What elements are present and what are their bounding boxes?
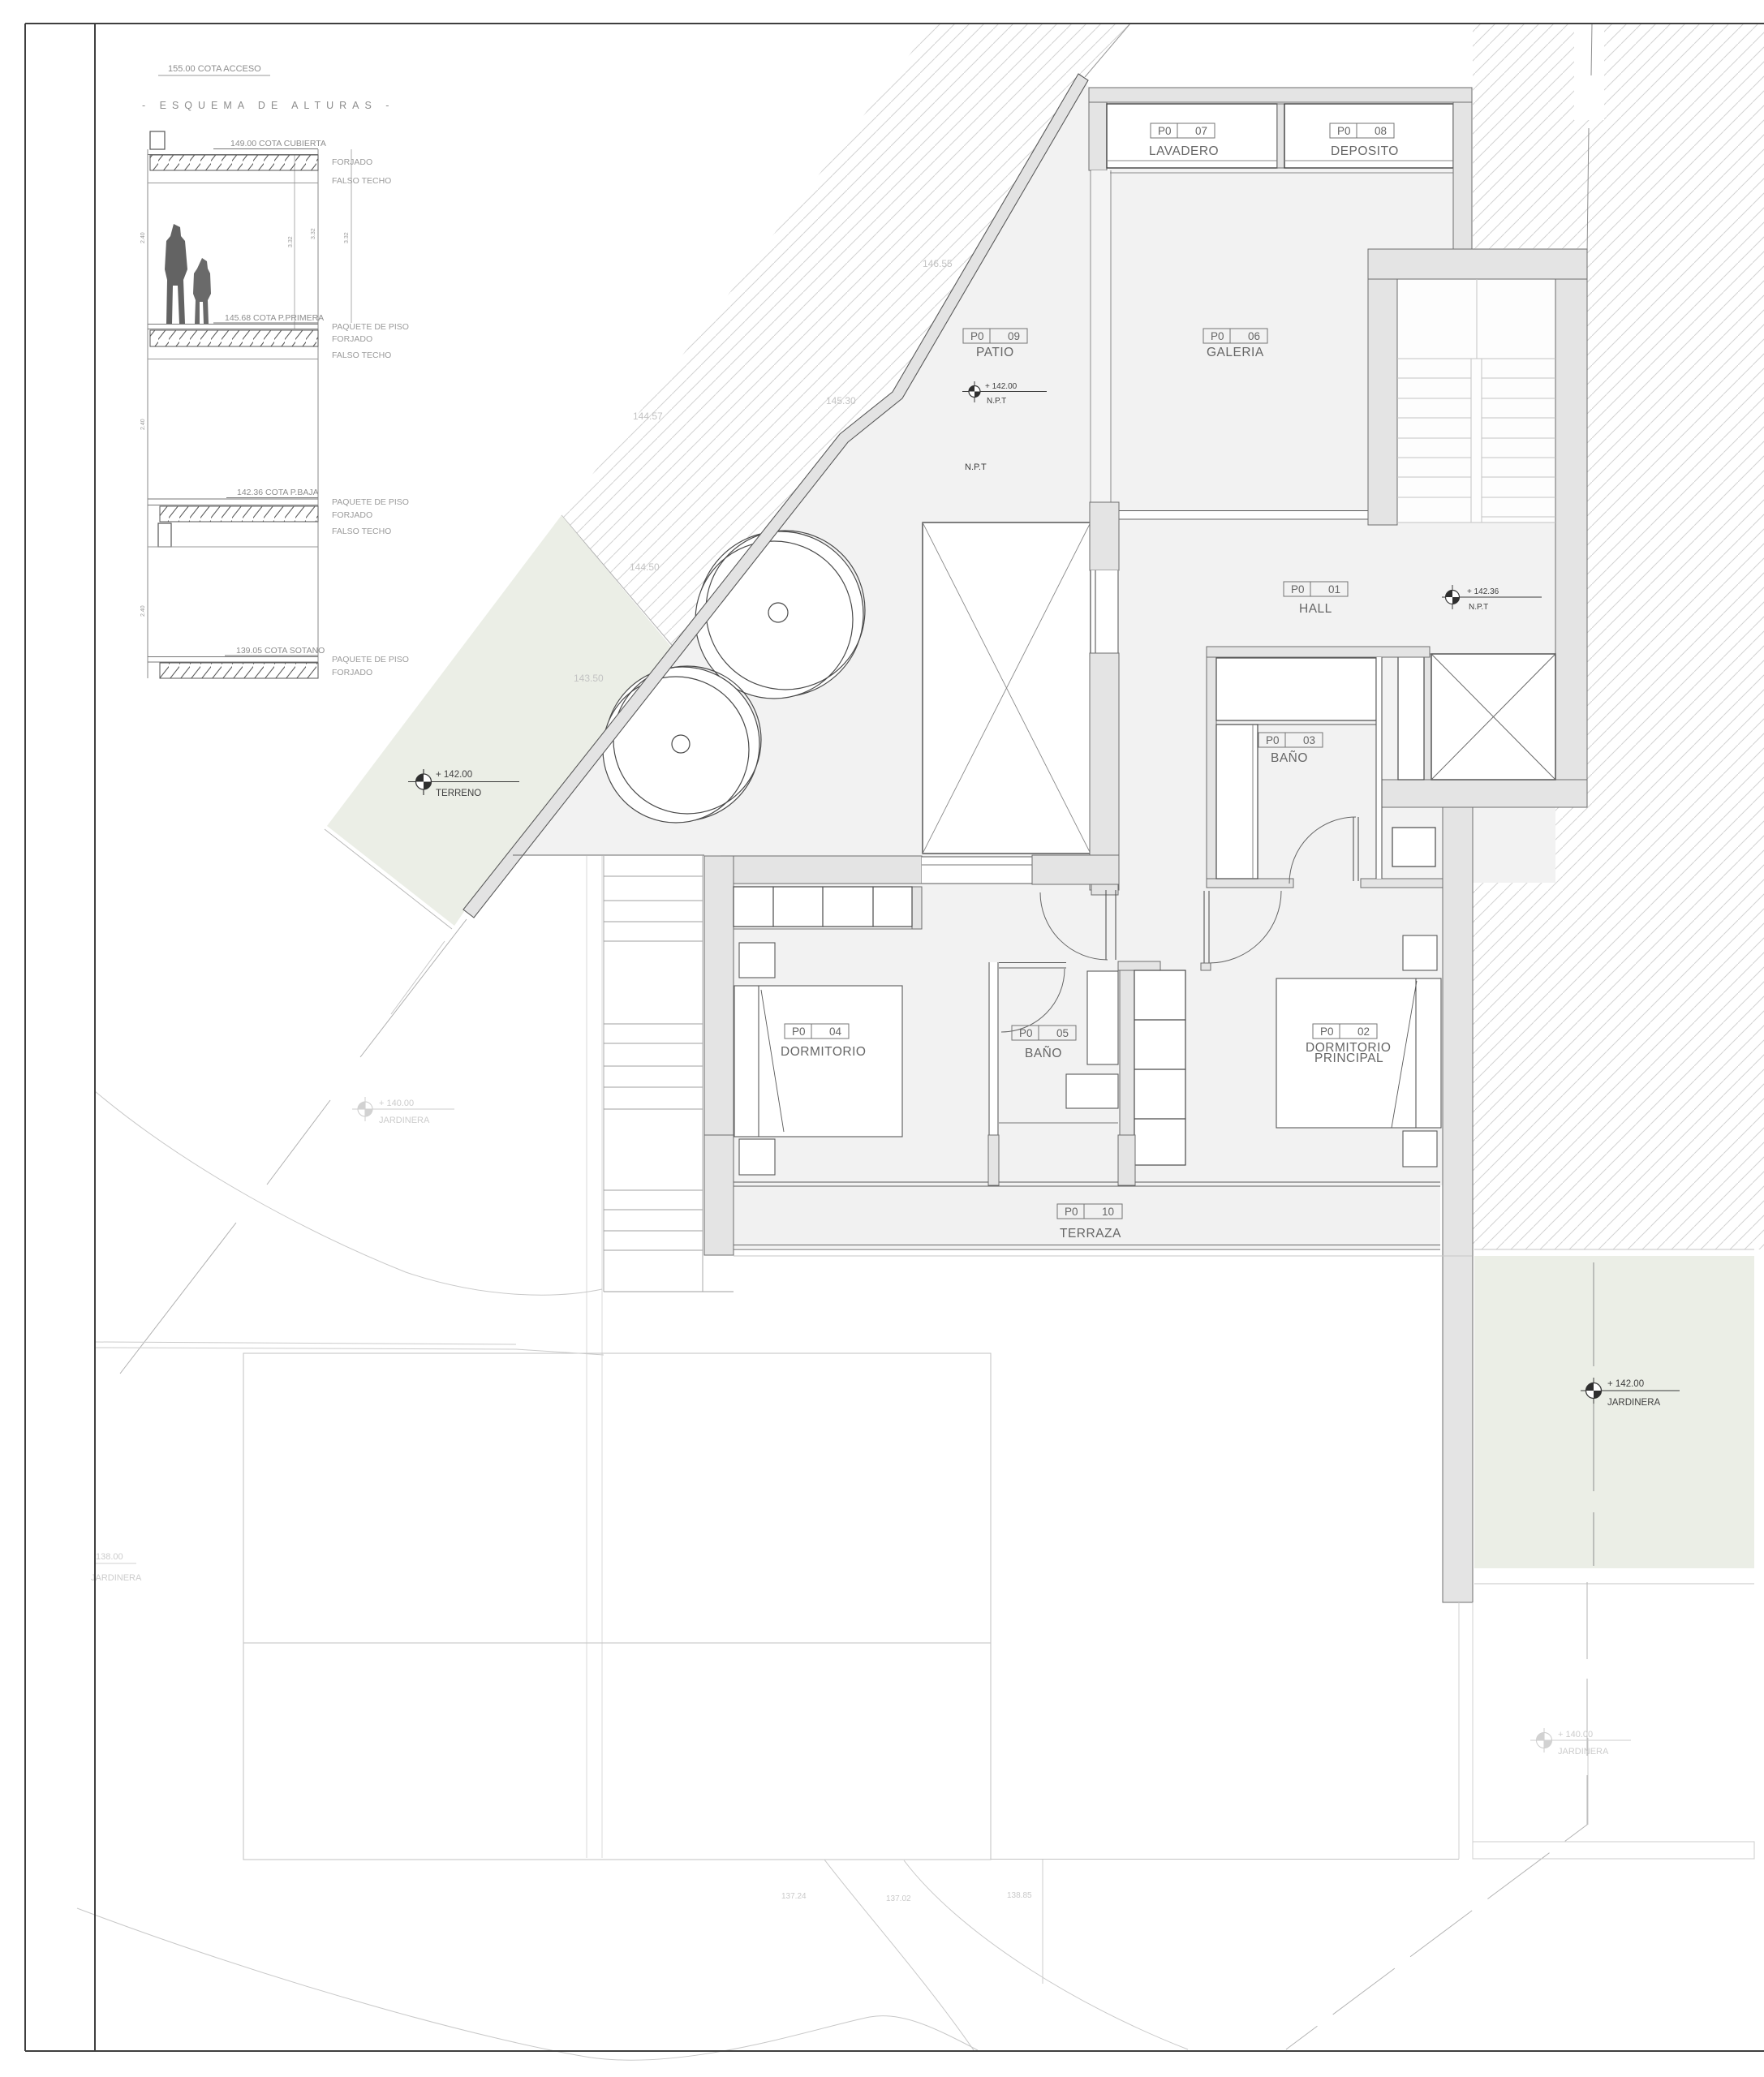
svg-text:03: 03	[1303, 734, 1315, 746]
svg-text:139.05 COTA SOTANO: 139.05 COTA SOTANO	[236, 646, 325, 656]
svg-text:P0: P0	[1291, 583, 1305, 596]
svg-text:155.00 COTA ACCESO: 155.00 COTA ACCESO	[168, 64, 261, 74]
svg-text:+ 142.00: + 142.00	[985, 382, 1018, 391]
svg-text:P0: P0	[1158, 125, 1172, 137]
svg-text:TERRENO: TERRENO	[436, 789, 481, 798]
svg-text:2.40: 2.40	[140, 605, 146, 617]
svg-text:N.P.T: N.P.T	[965, 462, 987, 472]
svg-text:138.00: 138.00	[96, 1552, 123, 1562]
svg-text:FORJADO: FORJADO	[332, 334, 372, 344]
svg-text:144.50: 144.50	[630, 561, 660, 573]
svg-text:JARDINERA: JARDINERA	[379, 1116, 430, 1125]
svg-text:P0: P0	[1266, 734, 1280, 746]
svg-text:01: 01	[1328, 583, 1340, 596]
svg-text:3.32: 3.32	[311, 228, 316, 239]
svg-text:FORJADO: FORJADO	[332, 510, 372, 520]
svg-text:GALERIA: GALERIA	[1207, 346, 1264, 359]
svg-text:+ 140.00: + 140.00	[379, 1099, 414, 1108]
svg-text:BAÑO: BAÑO	[1271, 751, 1308, 765]
svg-text:P0: P0	[1211, 330, 1224, 342]
svg-text:+ 142.00: + 142.00	[436, 770, 472, 780]
svg-text:06: 06	[1248, 330, 1260, 342]
svg-text:PATIO: PATIO	[976, 346, 1014, 359]
svg-text:+ 142.00: + 142.00	[1607, 1379, 1644, 1389]
svg-text:N.P.T: N.P.T	[1469, 603, 1488, 612]
svg-text:FORJADO: FORJADO	[332, 668, 372, 677]
svg-text:02: 02	[1357, 1026, 1370, 1038]
svg-text:10: 10	[1102, 1206, 1114, 1218]
svg-text:146.55: 146.55	[923, 258, 953, 269]
svg-text:142.36 COTA P.BAJA: 142.36 COTA P.BAJA	[237, 488, 319, 497]
svg-text:07: 07	[1195, 125, 1207, 137]
svg-text:LAVADERO: LAVADERO	[1149, 144, 1219, 158]
svg-text:PRINCIPAL: PRINCIPAL	[1314, 1051, 1383, 1065]
svg-text:05: 05	[1056, 1027, 1069, 1039]
svg-text:2.40: 2.40	[140, 419, 146, 430]
svg-text:FORJADO: FORJADO	[332, 157, 372, 167]
svg-text:04: 04	[829, 1026, 842, 1038]
svg-text:FALSO TECHO: FALSO TECHO	[332, 350, 391, 360]
svg-text:PAQUETE DE PISO: PAQUETE DE PISO	[332, 655, 409, 664]
svg-text:- ESQUEMA DE ALTURAS -: - ESQUEMA DE ALTURAS -	[142, 100, 394, 111]
svg-text:P0: P0	[1337, 125, 1351, 137]
svg-text:143.50: 143.50	[574, 673, 604, 684]
svg-text:P0: P0	[1320, 1026, 1334, 1038]
svg-text:3.32: 3.32	[288, 236, 294, 247]
svg-text:2.40: 2.40	[140, 232, 146, 243]
svg-text:138.85: 138.85	[1007, 1891, 1032, 1900]
svg-text:P0: P0	[970, 330, 984, 342]
svg-text:137.02: 137.02	[886, 1894, 911, 1903]
svg-text:BAÑO: BAÑO	[1025, 1047, 1062, 1060]
svg-text:09: 09	[1008, 330, 1020, 342]
svg-text:FALSO TECHO: FALSO TECHO	[332, 527, 391, 536]
svg-text:3.32: 3.32	[344, 232, 350, 243]
svg-text:145.68 COTA P.PRIMERA: 145.68 COTA P.PRIMERA	[225, 313, 324, 323]
svg-text:P0: P0	[1065, 1206, 1078, 1218]
svg-text:PAQUETE DE PISO: PAQUETE DE PISO	[332, 497, 409, 507]
svg-text:P0: P0	[792, 1026, 806, 1038]
svg-text:+ 142.36: + 142.36	[1467, 587, 1499, 596]
svg-text:DEPOSITO: DEPOSITO	[1331, 144, 1399, 158]
svg-text:145.30: 145.30	[826, 395, 856, 406]
svg-text:HALL: HALL	[1299, 602, 1332, 616]
svg-text:JARDINERA: JARDINERA	[91, 1573, 142, 1583]
svg-text:DORMITORIO: DORMITORIO	[781, 1045, 866, 1059]
svg-text:JARDINERA: JARDINERA	[1607, 1398, 1661, 1408]
svg-text:P0: P0	[1019, 1027, 1033, 1039]
svg-text:PAQUETE DE PISO: PAQUETE DE PISO	[332, 322, 409, 332]
svg-text:144.57: 144.57	[633, 411, 663, 422]
svg-text:08: 08	[1375, 125, 1387, 137]
svg-text:FALSO TECHO: FALSO TECHO	[332, 176, 391, 186]
svg-text:JARDINERA: JARDINERA	[1558, 1747, 1609, 1757]
svg-text:137.24: 137.24	[781, 1892, 807, 1901]
svg-text:149.00 COTA CUBIERTA: 149.00 COTA CUBIERTA	[230, 139, 326, 148]
svg-text:N.P.T: N.P.T	[987, 397, 1006, 406]
svg-text:TERRAZA: TERRAZA	[1060, 1227, 1121, 1241]
